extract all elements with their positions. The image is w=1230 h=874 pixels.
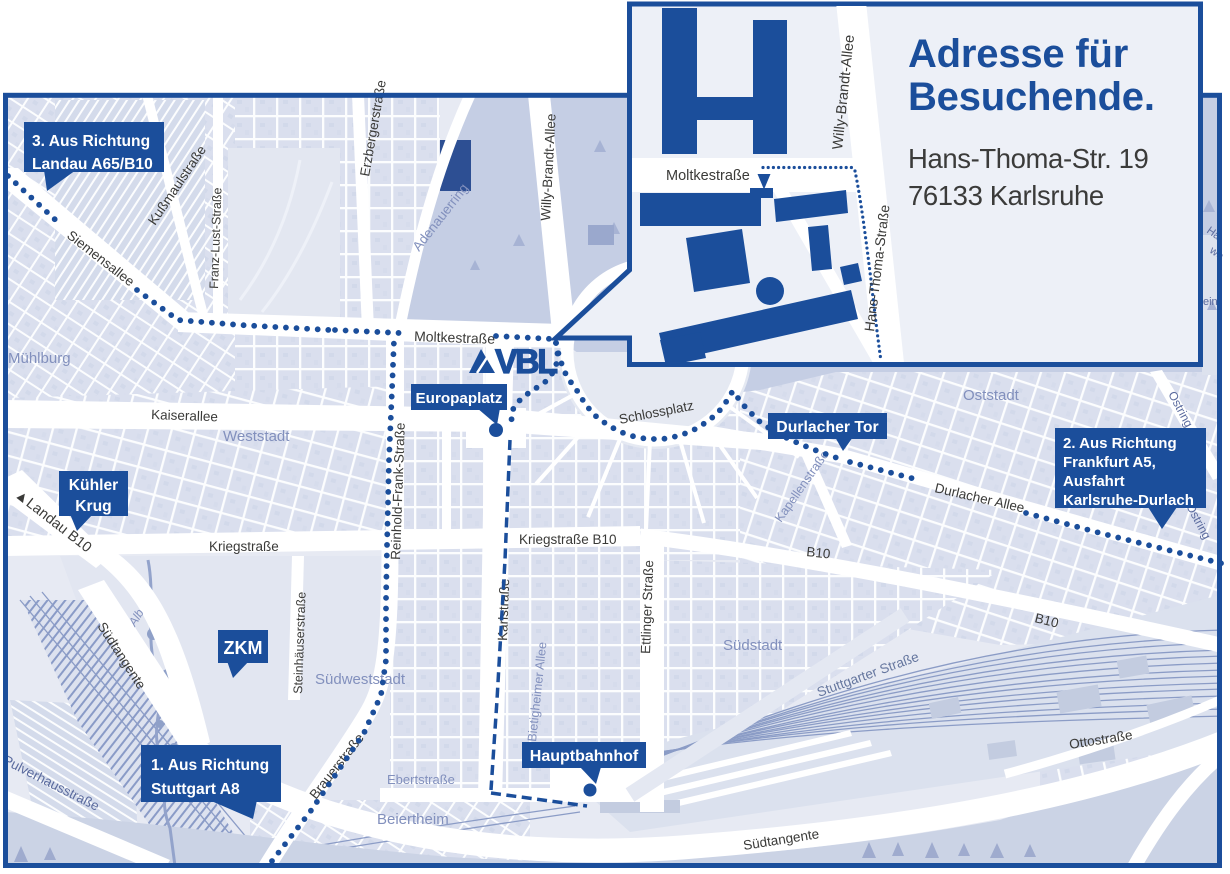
svg-text:Frankfurt A5,: Frankfurt A5,: [1063, 454, 1156, 471]
svg-text:Kriegstraße: Kriegstraße: [209, 539, 279, 554]
svg-text:1. Aus Richtung: 1. Aus Richtung: [151, 757, 269, 774]
svg-text:Landau A65/B10: Landau A65/B10: [32, 156, 153, 173]
svg-text:ein: ein: [1203, 296, 1218, 308]
svg-text:76133 Karlsruhe: 76133 Karlsruhe: [908, 180, 1104, 211]
svg-text:Europaplatz: Europaplatz: [416, 390, 503, 407]
svg-text:Stuttgart A8: Stuttgart A8: [151, 781, 240, 798]
svg-text:Durlacher Tor: Durlacher Tor: [776, 419, 878, 436]
svg-text:Kaiserallee: Kaiserallee: [151, 407, 218, 424]
svg-text:Ausfahrt: Ausfahrt: [1063, 473, 1125, 490]
svg-text:Besuchende.: Besuchende.: [908, 75, 1155, 119]
svg-text:Adresse für: Adresse für: [908, 32, 1128, 76]
svg-text:B10: B10: [806, 544, 831, 561]
svg-text:Oststadt: Oststadt: [963, 387, 1020, 404]
svg-text:Hauptbahnhof: Hauptbahnhof: [530, 748, 639, 765]
svg-text:Moltkestraße: Moltkestraße: [666, 168, 750, 184]
svg-text:Südweststadt: Südweststadt: [315, 671, 406, 688]
svg-text:Moltkestraße: Moltkestraße: [414, 328, 496, 347]
svg-text:Ebertstraße: Ebertstraße: [387, 772, 455, 787]
svg-text:2. Aus Richtung: 2. Aus Richtung: [1063, 435, 1177, 452]
svg-text:Beiertheim: Beiertheim: [377, 811, 449, 828]
svg-text:Mühlburg: Mühlburg: [8, 350, 71, 367]
svg-text:Kühler: Kühler: [69, 477, 118, 494]
svg-text:Hans-Thoma-Str. 19: Hans-Thoma-Str. 19: [908, 143, 1148, 174]
svg-text:Weststadt: Weststadt: [223, 428, 290, 445]
svg-text:Karlsruhe-Durlach: Karlsruhe-Durlach: [1063, 492, 1194, 509]
svg-text:Kriegstraße B10: Kriegstraße B10: [519, 532, 617, 547]
svg-text:ZKM: ZKM: [224, 638, 263, 658]
svg-text:Südstadt: Südstadt: [723, 637, 783, 654]
svg-text:VBL: VBL: [495, 343, 557, 381]
svg-text:3. Aus Richtung: 3. Aus Richtung: [32, 133, 150, 150]
svg-text:Krug: Krug: [75, 498, 111, 515]
